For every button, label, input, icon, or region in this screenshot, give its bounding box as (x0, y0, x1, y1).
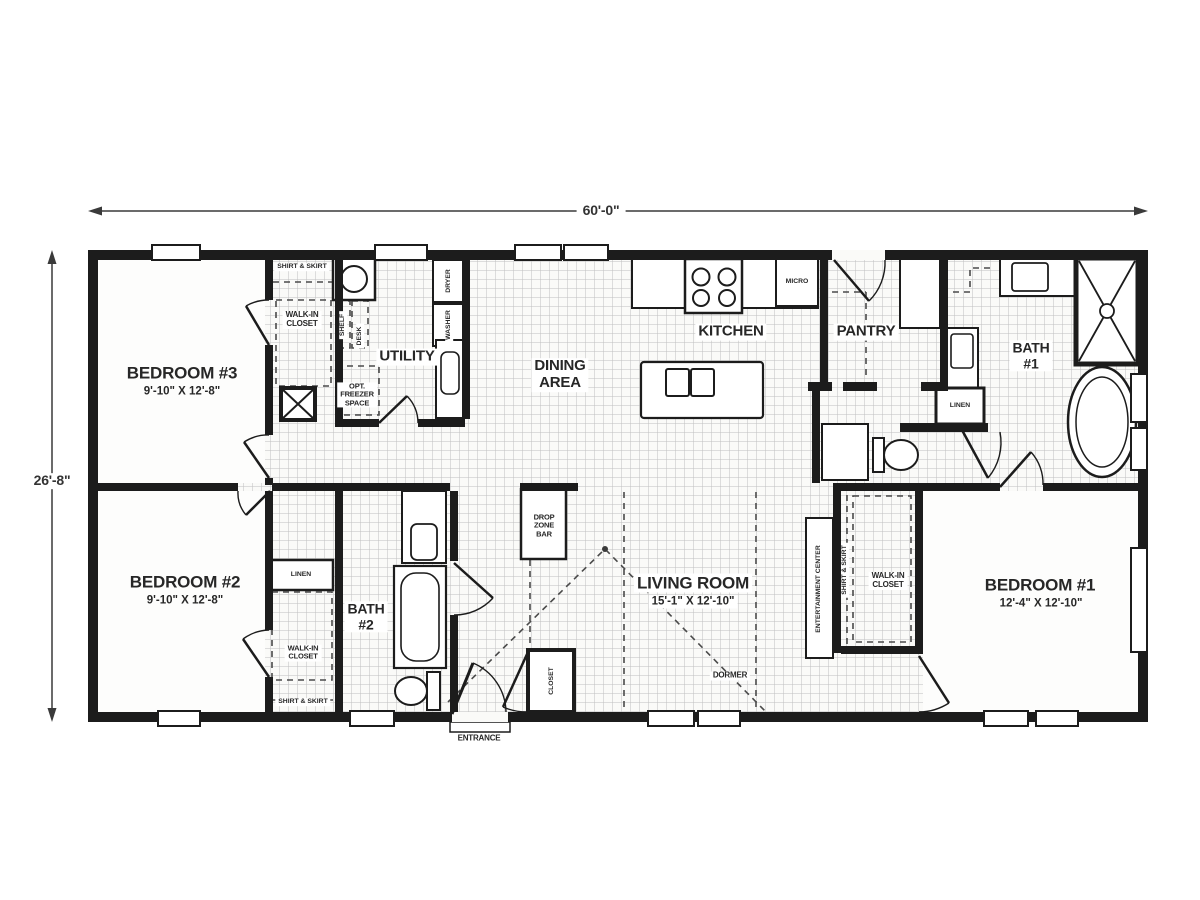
window (648, 711, 694, 726)
window (375, 245, 427, 260)
label-entrance: ENTRANCE (455, 735, 504, 744)
dormer-apex-dot (602, 546, 608, 552)
dimension-height-label: 26'-8" (28, 473, 77, 489)
utility-sink (436, 340, 464, 418)
window (515, 245, 561, 260)
shower (1076, 258, 1138, 364)
window (984, 711, 1028, 726)
room-size-bedroom3: 9'-10" X 12'-8" (141, 386, 223, 399)
room-label-bath2: BATH #2 (344, 601, 387, 632)
label-entry-closet: CLOSET (548, 664, 556, 698)
label-shirt-skirt-bedroom3: SHIRT & SKIRT (274, 263, 329, 271)
label-micro: MICRO (783, 278, 812, 286)
label-shelf: SHELF (339, 311, 347, 339)
window (152, 245, 200, 260)
window (1131, 428, 1147, 470)
label-opt-freezer: OPT. FREEZER SPACE (337, 382, 377, 407)
label-dormer: DORMER (710, 672, 750, 681)
window (1131, 374, 1147, 422)
label-dryer: DRYER (445, 266, 453, 296)
label-walkin-bedroom1: WALK-IN CLOSET (869, 572, 908, 590)
label-washer: WASHER (445, 307, 453, 343)
window (1131, 548, 1147, 652)
stove (685, 259, 742, 313)
floor-plan-drawing (0, 0, 1200, 900)
chase-box (281, 388, 315, 420)
floor-plan: 60'-0" 26'-8" BEDROOM #3 9'-10" X 12'-8"… (0, 0, 1200, 900)
bathtub-bath2 (394, 566, 446, 668)
label-walkin-bedroom2: WALK-IN CLOSET (285, 645, 322, 662)
label-linen-bedroom2: LINEN (288, 571, 314, 579)
label-shirt-skirt-bedroom2: SHIRT & SKIRT (275, 698, 330, 706)
label-entertainment-center: ENTERTAINMENT CENTER (815, 542, 823, 635)
label-shirt-skirt-bedroom1: SHIRT & SKIRT (841, 542, 849, 597)
label-walkin-bedroom3: WALK-IN CLOSET (283, 311, 322, 329)
room-label-utility: UTILITY (376, 349, 437, 366)
room-size-bedroom2: 9'-10" X 12'-8" (144, 595, 226, 608)
room-size-bedroom1: 12'-4" X 12'-10" (997, 598, 1086, 611)
room-label-dining: DINING AREA (531, 358, 588, 392)
window (350, 711, 394, 726)
bath1-vanity (946, 328, 978, 392)
room-label-bath1: BATH #1 (1009, 340, 1052, 371)
window (1036, 711, 1078, 726)
entrance-step (450, 722, 510, 732)
room-label-living: LIVING ROOM (634, 573, 752, 592)
room-label-pantry: PANTRY (834, 324, 899, 341)
window (158, 711, 200, 726)
window (698, 711, 740, 726)
room-label-bedroom2: BEDROOM #2 (127, 572, 243, 591)
label-drop-zone: DROP ZONE BAR (531, 513, 558, 538)
toilet-room-vanity (822, 424, 868, 480)
dimension-width-label: 60'-0" (577, 203, 626, 219)
bathtub-oval (1068, 367, 1136, 477)
window (564, 245, 608, 260)
room-label-kitchen: KITCHEN (695, 324, 766, 341)
pantry-cabinet (900, 258, 940, 328)
room-size-living: 15'-1" X 12'-10" (649, 596, 738, 609)
toilet-bath1 (873, 438, 918, 472)
kitchen-island (641, 362, 763, 418)
bath1-counter (1000, 258, 1076, 296)
label-desk: DESK (356, 324, 364, 349)
label-linen-bath1: LINEN (947, 402, 973, 410)
bath2-vanity (402, 491, 446, 563)
room-label-bedroom3: BEDROOM #3 (124, 363, 240, 382)
room-label-bedroom1: BEDROOM #1 (982, 575, 1098, 594)
